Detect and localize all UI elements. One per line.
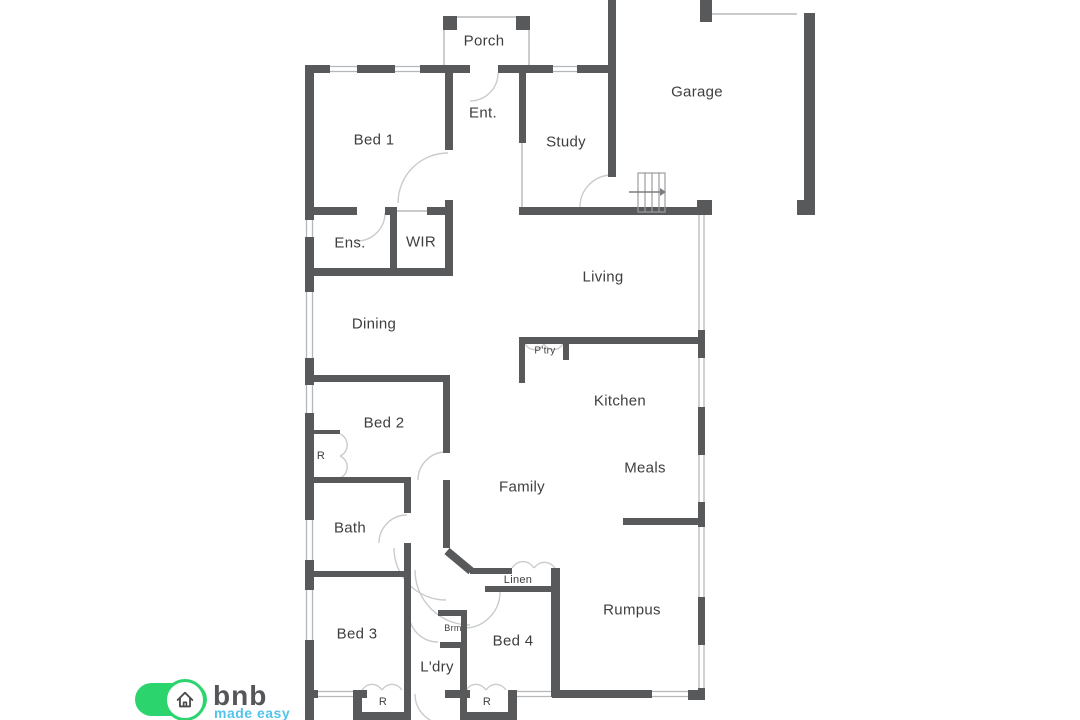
wall-segment (305, 358, 314, 385)
robe-label-bed3: R (379, 696, 387, 708)
door-arc (340, 456, 347, 478)
wall-segment (390, 214, 397, 270)
wall-segment (443, 16, 457, 30)
wall-segment (700, 0, 712, 22)
door-arc (534, 562, 555, 568)
wall-segment (804, 13, 815, 215)
wall-segment (353, 690, 367, 698)
room-label-bed1: Bed 1 (354, 132, 395, 149)
robe-label-bed4: R (483, 696, 491, 708)
wall-segment (305, 237, 314, 292)
wall-segment (516, 16, 530, 30)
wall-segment-diagonal (447, 551, 471, 571)
door-arc (379, 515, 407, 543)
wall-segment (698, 502, 705, 527)
wall-segment (314, 430, 340, 434)
wall-segment (438, 610, 467, 616)
room-label-bath: Bath (334, 520, 366, 537)
wall-segment (305, 477, 411, 483)
floor-plan: Porch Ent. Bed 1 Study Garage Ens. WIR L… (0, 0, 1080, 720)
wall-segment (305, 571, 411, 577)
room-label-bed3: Bed 3 (337, 626, 378, 643)
room-label-ldry: L'dry (420, 659, 454, 676)
room-label-wir: WIR (406, 234, 436, 251)
door-arc (415, 694, 445, 720)
stairs-icon (629, 173, 666, 212)
room-label-dining: Dining (352, 316, 396, 333)
room-label-meals: Meals (624, 460, 666, 477)
wall-segment (508, 690, 517, 720)
wall-segment (385, 207, 397, 215)
wall-segment (427, 207, 453, 215)
wall-segment (404, 543, 411, 720)
room-label-living: Living (583, 269, 624, 286)
door-arc (512, 562, 534, 568)
wall-segment (519, 73, 526, 143)
wall-segment (305, 375, 450, 382)
room-label-ent: Ent. (469, 105, 497, 122)
door-arc (486, 684, 506, 690)
door-arc (382, 684, 402, 690)
door-arc (418, 452, 446, 480)
wall-segment (563, 344, 569, 360)
door-arc (409, 613, 438, 642)
wall-segment (305, 640, 314, 720)
wall-segment (698, 597, 705, 645)
robe-label-bed2: R (317, 450, 325, 462)
wall-segment (305, 413, 314, 520)
door-arc (466, 684, 486, 690)
wall-segment (443, 480, 450, 548)
room-label-pantry: P'try (534, 346, 555, 357)
house-icon (174, 689, 196, 711)
wall-segment (357, 65, 395, 73)
wall-segment (519, 337, 705, 344)
wall-segment (404, 483, 411, 513)
logo-tagline-text: made easy (214, 705, 290, 720)
room-label-study: Study (546, 134, 586, 151)
wall-segment (608, 0, 616, 177)
door-arc (340, 434, 347, 456)
wall-segment (485, 586, 557, 592)
floor-plan-drawing (0, 0, 1080, 720)
door-arc (580, 175, 612, 207)
wall-segment (519, 207, 697, 215)
wall-segment (460, 648, 467, 720)
room-label-porch: Porch (464, 33, 505, 50)
wall-segment (498, 65, 553, 73)
room-label-garage: Garage (671, 84, 723, 101)
door-arc (398, 153, 448, 203)
wall-segment (443, 375, 450, 453)
room-label-ens: Ens. (334, 235, 365, 252)
door-arc (470, 73, 498, 101)
room-label-linen: Linen (504, 574, 532, 586)
door-arc (362, 684, 382, 690)
wall-segment (305, 268, 453, 276)
wall-segment (577, 65, 615, 73)
wall-segment (698, 688, 705, 698)
room-label-kitchen: Kitchen (594, 393, 646, 410)
wall-segment (552, 690, 652, 698)
room-label-bed2: Bed 2 (364, 415, 405, 432)
wall-segment (519, 344, 525, 383)
wall-segment (420, 65, 470, 73)
room-label-brm: Brm (444, 623, 461, 633)
room-label-bed4: Bed 4 (493, 633, 534, 650)
wall-segment (305, 65, 314, 220)
logo-circle-badge (164, 679, 206, 720)
room-label-family: Family (499, 479, 545, 496)
wall-segment (623, 518, 705, 525)
wall-segment (698, 407, 705, 455)
wall-segment (697, 200, 712, 215)
wall-segment (445, 73, 453, 150)
wall-segment (305, 560, 314, 590)
room-label-rumpus: Rumpus (603, 602, 661, 619)
door-arc (464, 592, 500, 628)
